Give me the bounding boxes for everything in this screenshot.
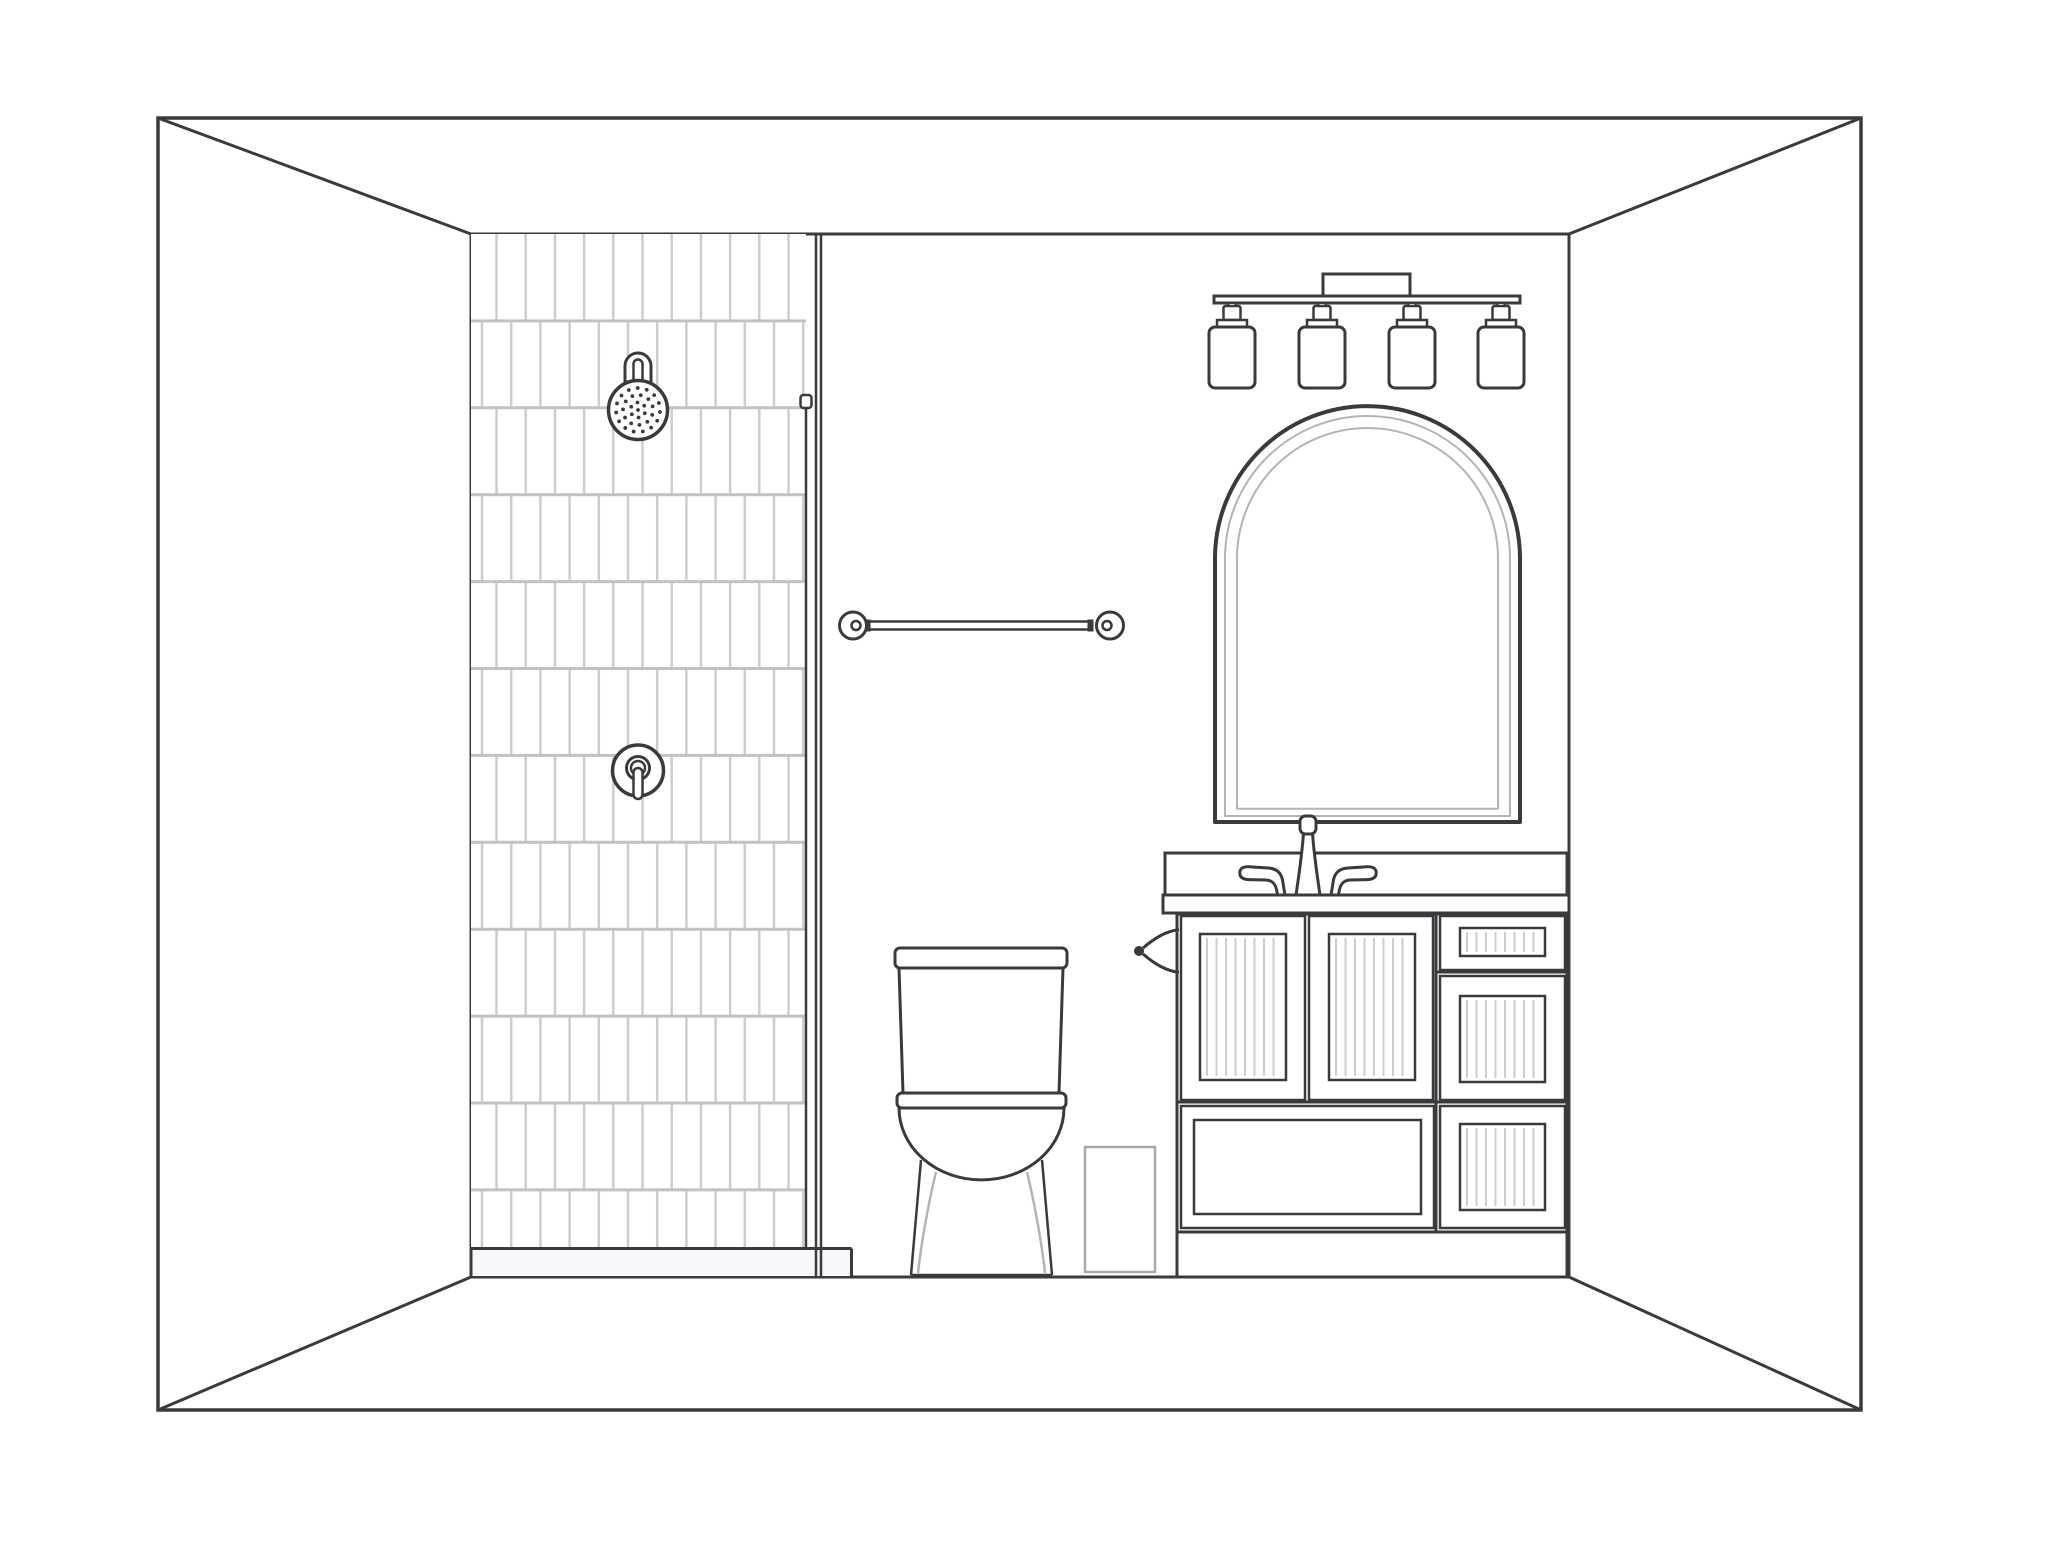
cabinet-door-1 bbox=[1181, 916, 1305, 1100]
scene-canvas bbox=[0, 0, 2048, 1545]
cabinet-door-2 bbox=[1309, 916, 1433, 1100]
vanity-counter bbox=[1163, 853, 1569, 913]
vanity-mirror bbox=[1215, 406, 1520, 822]
trash-bin bbox=[1085, 1147, 1155, 1272]
bathroom-line-drawing bbox=[0, 0, 2048, 1545]
cabinet-drawer-1 bbox=[1440, 916, 1565, 970]
cabinet-drawer-3 bbox=[1440, 1106, 1565, 1228]
cabinet-drawer-2 bbox=[1440, 976, 1565, 1100]
shower-valve bbox=[613, 745, 664, 799]
room-outline bbox=[0, 0, 2048, 1545]
shower-pan bbox=[471, 1249, 852, 1278]
cabinet-wide-drawer bbox=[1181, 1106, 1434, 1228]
